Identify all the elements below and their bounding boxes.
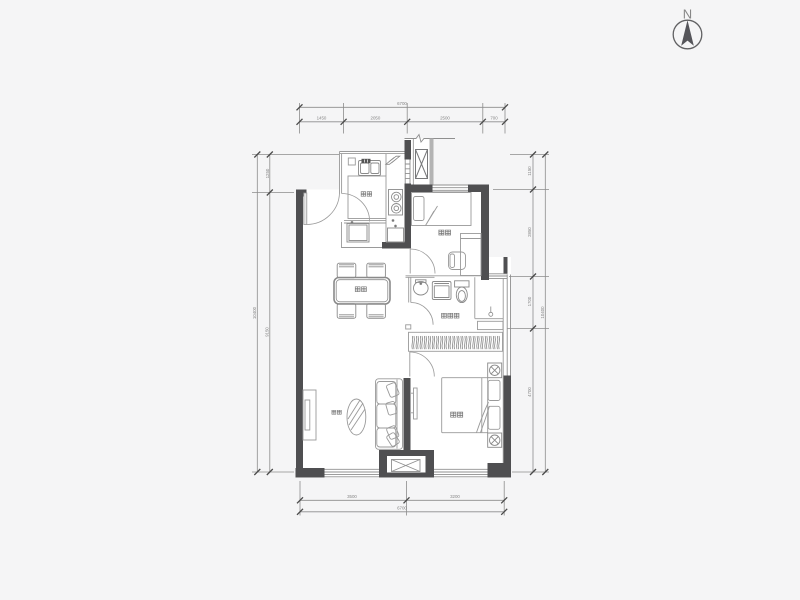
svg-text:10400: 10400 — [252, 306, 257, 319]
svg-text:6700: 6700 — [397, 101, 407, 106]
svg-text:10400: 10400 — [540, 306, 545, 319]
svg-text:9150: 9150 — [265, 327, 270, 337]
svg-text:3500: 3500 — [347, 494, 357, 499]
svg-text:N: N — [683, 7, 692, 22]
svg-text:2850: 2850 — [527, 227, 532, 237]
svg-text:4700: 4700 — [527, 387, 532, 397]
svg-text:1150: 1150 — [527, 166, 532, 176]
svg-text:700: 700 — [490, 116, 498, 121]
svg-text:2500: 2500 — [440, 116, 450, 121]
svg-text:6700: 6700 — [397, 506, 407, 511]
svg-text:1450: 1450 — [317, 116, 327, 121]
svg-text:1700: 1700 — [527, 296, 532, 306]
svg-text:3200: 3200 — [450, 494, 460, 499]
svg-text:2050: 2050 — [371, 116, 381, 121]
svg-text:1250: 1250 — [265, 168, 270, 178]
